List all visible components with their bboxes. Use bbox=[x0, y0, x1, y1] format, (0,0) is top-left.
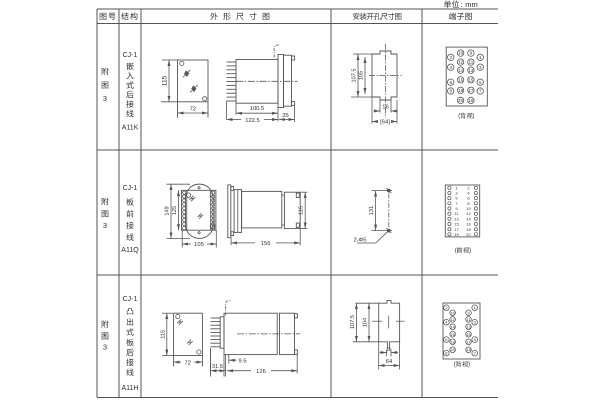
svg-text:16: 16 bbox=[382, 105, 388, 111]
svg-text:6: 6 bbox=[445, 337, 448, 342]
svg-text:15: 15 bbox=[466, 332, 471, 337]
svg-text:(: ( bbox=[455, 248, 457, 254]
svg-text:16: 16 bbox=[386, 347, 392, 352]
svg-text:4: 4 bbox=[445, 320, 448, 325]
svg-text:14: 14 bbox=[458, 68, 464, 73]
svg-text:20: 20 bbox=[450, 347, 455, 352]
svg-text:20: 20 bbox=[458, 98, 464, 103]
svg-text:CJ-1: CJ-1 bbox=[123, 185, 138, 192]
svg-text:8: 8 bbox=[445, 351, 448, 356]
svg-text:19: 19 bbox=[468, 98, 474, 103]
svg-text:3: 3 bbox=[479, 65, 482, 70]
svg-text:16: 16 bbox=[458, 77, 464, 82]
svg-text:4: 4 bbox=[449, 65, 452, 70]
svg-text:131: 131 bbox=[369, 206, 375, 215]
svg-text:105: 105 bbox=[194, 242, 204, 248]
svg-text:2: 2 bbox=[449, 55, 452, 60]
svg-text:10: 10 bbox=[450, 310, 455, 315]
svg-text:125: 125 bbox=[172, 206, 178, 215]
svg-text:1: 1 bbox=[479, 55, 482, 60]
svg-text:11: 11 bbox=[469, 60, 474, 65]
svg-text:12: 12 bbox=[450, 317, 455, 322]
svg-text:13: 13 bbox=[466, 324, 471, 329]
svg-text:3: 3 bbox=[103, 221, 107, 230]
svg-text:8: 8 bbox=[449, 89, 452, 94]
svg-text:100.5: 100.5 bbox=[250, 106, 265, 112]
svg-text:20: 20 bbox=[466, 232, 471, 237]
svg-text:7: 7 bbox=[474, 351, 477, 356]
svg-text:149: 149 bbox=[164, 206, 170, 215]
svg-text:14: 14 bbox=[450, 324, 455, 329]
svg-text::: : bbox=[461, 0, 463, 9]
svg-text:CJ-1: CJ-1 bbox=[123, 296, 138, 303]
svg-text:12: 12 bbox=[458, 60, 464, 65]
svg-text:9.5: 9.5 bbox=[239, 359, 247, 365]
svg-text:): ) bbox=[468, 362, 470, 368]
svg-text:72: 72 bbox=[184, 360, 190, 366]
svg-text:122.5: 122.5 bbox=[245, 118, 260, 124]
svg-text:5: 5 bbox=[474, 337, 477, 342]
svg-text:(: ( bbox=[458, 114, 460, 120]
svg-text:104: 104 bbox=[362, 318, 368, 327]
svg-text:3: 3 bbox=[103, 94, 107, 103]
svg-text:115: 115 bbox=[160, 330, 166, 339]
svg-text:): ) bbox=[469, 248, 471, 254]
svg-text:2: 2 bbox=[445, 305, 448, 310]
svg-text:5: 5 bbox=[479, 80, 482, 85]
svg-text:3: 3 bbox=[103, 342, 107, 351]
svg-text:10: 10 bbox=[458, 51, 464, 56]
svg-text:2-Φ5: 2-Φ5 bbox=[353, 237, 366, 243]
svg-text:156: 156 bbox=[261, 241, 271, 247]
svg-text:18: 18 bbox=[458, 88, 464, 93]
svg-text:115: 115 bbox=[161, 75, 168, 86]
svg-text:18: 18 bbox=[450, 339, 455, 344]
svg-text:7: 7 bbox=[479, 89, 482, 94]
svg-text:A11H: A11H bbox=[122, 385, 139, 392]
svg-text:CJ-1: CJ-1 bbox=[123, 52, 138, 59]
svg-text:107.5: 107.5 bbox=[351, 69, 357, 83]
svg-text:31.5: 31.5 bbox=[212, 364, 223, 370]
svg-text:64: 64 bbox=[386, 359, 393, 365]
svg-text:): ) bbox=[473, 114, 475, 120]
svg-text:16: 16 bbox=[450, 332, 455, 337]
svg-text:126: 126 bbox=[256, 369, 266, 375]
svg-text:17: 17 bbox=[468, 88, 474, 93]
svg-text:17: 17 bbox=[466, 339, 471, 344]
svg-text:19: 19 bbox=[466, 347, 471, 352]
svg-text:105: 105 bbox=[358, 71, 364, 80]
svg-text:115: 115 bbox=[299, 206, 305, 215]
svg-text:9: 9 bbox=[467, 310, 470, 315]
svg-text:(: ( bbox=[454, 362, 456, 368]
svg-text:mm: mm bbox=[465, 0, 478, 9]
svg-text:A11Q: A11Q bbox=[121, 247, 139, 254]
svg-text:19: 19 bbox=[454, 232, 459, 237]
svg-text:15: 15 bbox=[468, 77, 474, 82]
svg-text:72: 72 bbox=[190, 107, 196, 113]
svg-text:107.5: 107.5 bbox=[350, 315, 356, 329]
svg-text:35: 35 bbox=[282, 113, 288, 119]
svg-text:6: 6 bbox=[449, 80, 452, 85]
svg-text:13: 13 bbox=[468, 68, 474, 73]
svg-text:[64]: [64] bbox=[380, 119, 390, 125]
svg-text:1: 1 bbox=[474, 305, 477, 310]
svg-text:9: 9 bbox=[470, 51, 473, 56]
svg-text:3: 3 bbox=[474, 320, 477, 325]
svg-text:A11K: A11K bbox=[122, 125, 139, 132]
